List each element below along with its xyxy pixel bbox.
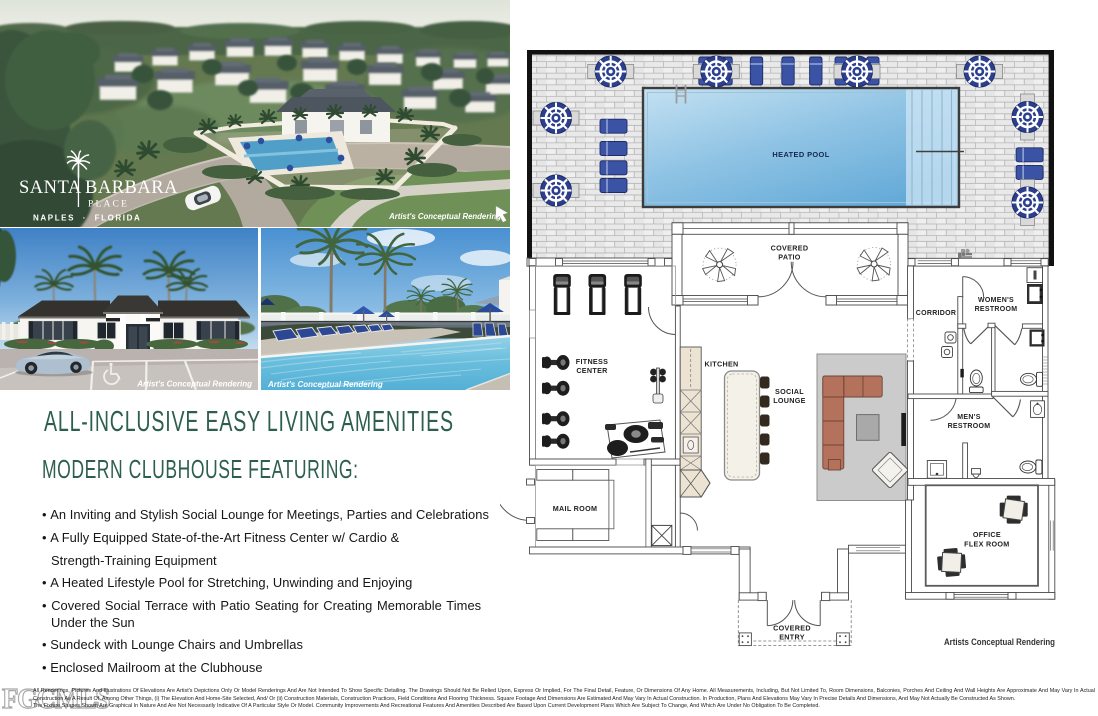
svg-text:ENTRY: ENTRY bbox=[779, 633, 805, 642]
svg-text:FLEX ROOM: FLEX ROOM bbox=[964, 540, 1009, 549]
svg-text:RESTROOM: RESTROOM bbox=[975, 306, 1018, 313]
svg-text:CORRIDOR: CORRIDOR bbox=[916, 310, 957, 317]
svg-text:COVERED: COVERED bbox=[773, 624, 811, 633]
svg-text:LOUNGE: LOUNGE bbox=[773, 396, 806, 405]
svg-text:KITCHEN: KITCHEN bbox=[705, 360, 739, 369]
svg-text:SOCIAL: SOCIAL bbox=[775, 387, 804, 396]
svg-text:Artist's Conceptual Rendering: Artist's Conceptual Rendering bbox=[267, 380, 383, 389]
svg-text:OFFICE: OFFICE bbox=[973, 530, 1001, 539]
svg-text:PATIO: PATIO bbox=[778, 253, 801, 262]
svg-text:NAPLES · FLORIDA: NAPLES · FLORIDA bbox=[33, 214, 141, 223]
svg-text:HEATED POOL: HEATED POOL bbox=[772, 150, 829, 159]
svg-text:Artist's Conceptual Rendering: Artist's Conceptual Rendering bbox=[388, 212, 501, 221]
svg-text:MEN'S: MEN'S bbox=[957, 414, 980, 421]
svg-text:SANTA: SANTA bbox=[19, 178, 82, 198]
svg-text:CENTER: CENTER bbox=[576, 366, 608, 375]
svg-text:Artist's Conceptual Rendering: Artist's Conceptual Rendering bbox=[136, 380, 252, 389]
svg-text:BARBARA: BARBARA bbox=[85, 178, 178, 198]
svg-text:COVERED: COVERED bbox=[771, 244, 809, 253]
svg-text:RESTROOM: RESTROOM bbox=[948, 423, 991, 430]
svg-text:FITNESS: FITNESS bbox=[576, 357, 608, 366]
svg-text:PLACE: PLACE bbox=[88, 200, 129, 210]
svg-text:MAIL ROOM: MAIL ROOM bbox=[553, 504, 598, 513]
svg-text:WOMEN'S: WOMEN'S bbox=[978, 297, 1014, 304]
svg-text:Artists Conceptual Rendering: Artists Conceptual Rendering bbox=[944, 637, 1055, 647]
